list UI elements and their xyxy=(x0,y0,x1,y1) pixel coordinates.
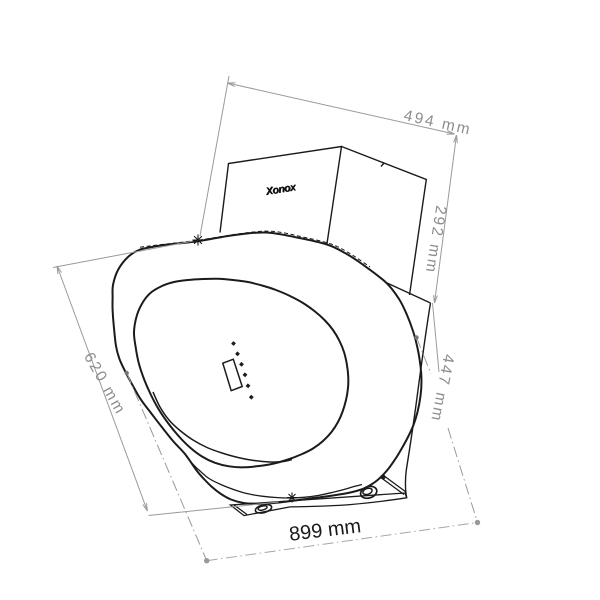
svg-text:292 mm: 292 mm xyxy=(422,204,450,275)
svg-text:620 mm: 620 mm xyxy=(80,350,129,419)
svg-text:494 mm: 494 mm xyxy=(402,107,473,139)
svg-text:447 mm: 447 mm xyxy=(427,353,457,424)
svg-text:899 mm: 899 mm xyxy=(288,515,362,546)
svg-text:Xonox: Xonox xyxy=(265,181,299,198)
